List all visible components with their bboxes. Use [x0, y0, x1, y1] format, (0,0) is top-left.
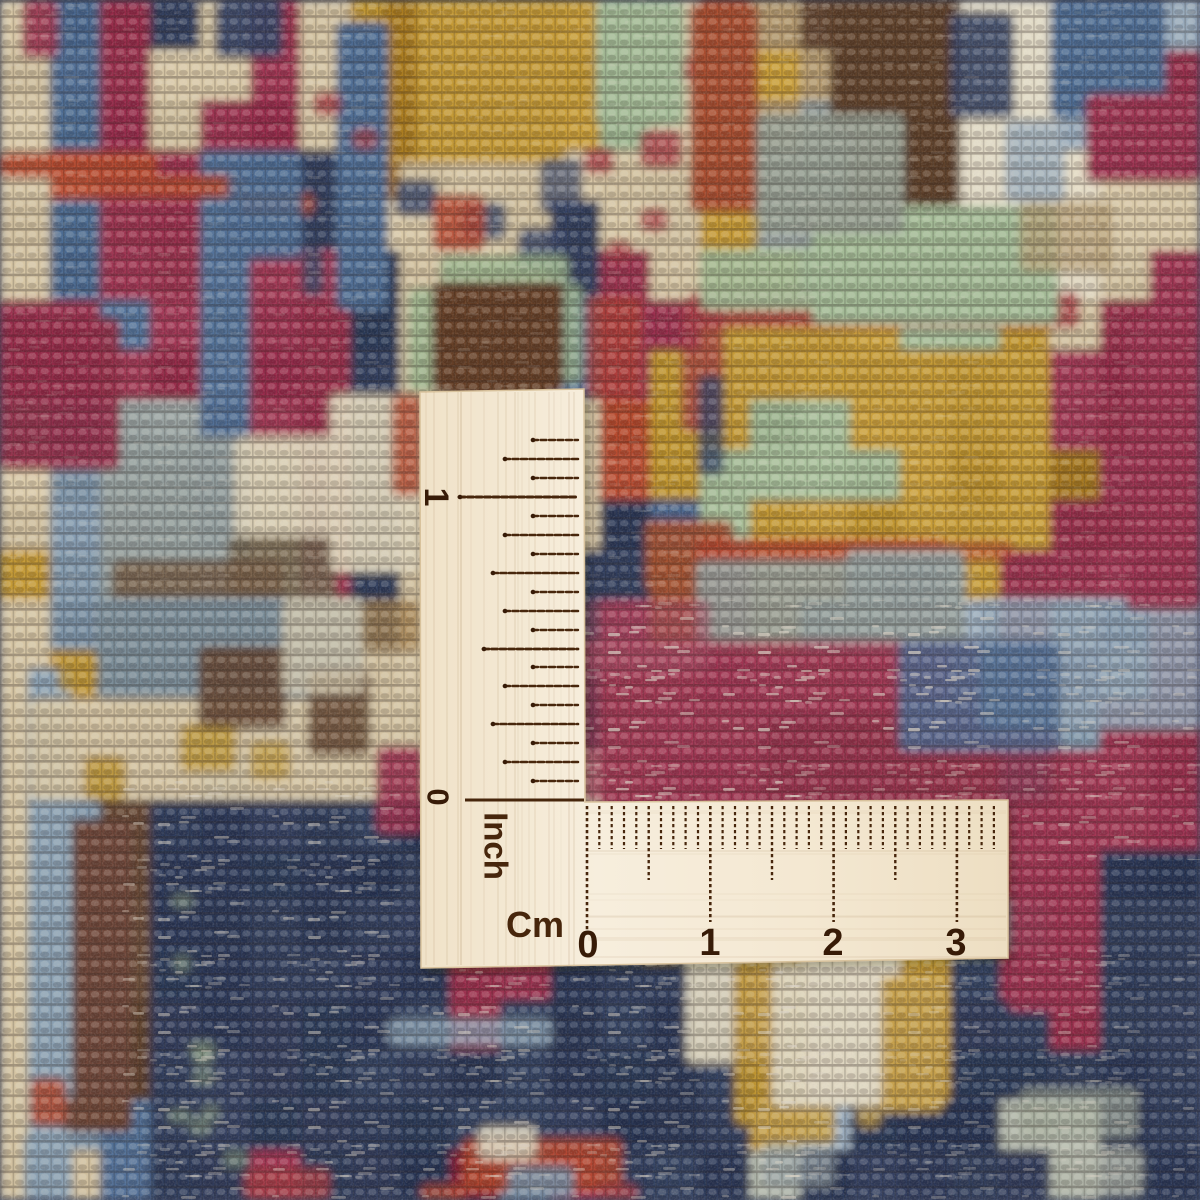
svg-text:0: 0	[577, 924, 598, 966]
svg-text:2: 2	[822, 922, 843, 964]
svg-text:0: 0	[421, 788, 456, 805]
svg-text:3: 3	[945, 922, 966, 964]
svg-text:1: 1	[417, 488, 455, 507]
svg-text:Inch: Inch	[478, 812, 515, 880]
svg-text:Cm: Cm	[506, 904, 564, 945]
svg-text:1: 1	[699, 922, 720, 964]
